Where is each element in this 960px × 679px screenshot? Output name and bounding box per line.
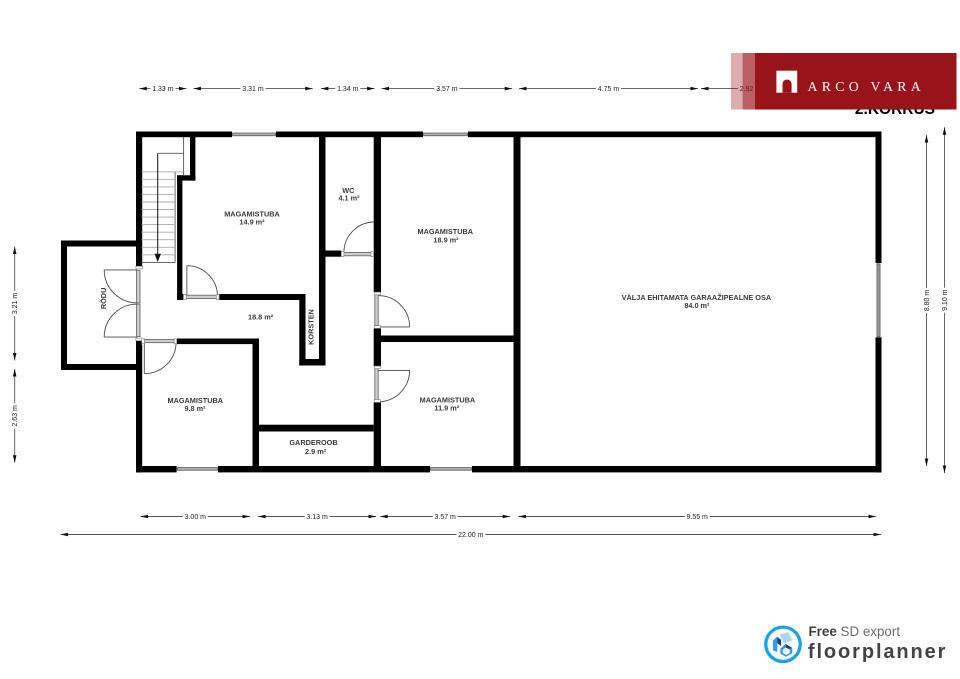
svg-text:9.8 m²: 9.8 m² bbox=[184, 404, 206, 413]
svg-text:18.9 m²: 18.9 m² bbox=[433, 235, 459, 244]
svg-text:18.8 m²: 18.8 m² bbox=[248, 313, 274, 322]
svg-text:floorplanner: floorplanner bbox=[808, 641, 947, 663]
svg-text:3.00 m: 3.00 m bbox=[185, 514, 207, 521]
svg-text:GARDEROOB: GARDEROOB bbox=[289, 438, 337, 447]
svg-text:3.31 m: 3.31 m bbox=[242, 86, 264, 93]
svg-text:22.00 m: 22.00 m bbox=[458, 532, 483, 539]
svg-text:1.34 m: 1.34 m bbox=[337, 86, 359, 93]
svg-text:4.75 m: 4.75 m bbox=[598, 86, 620, 93]
svg-text:1.33 m: 1.33 m bbox=[152, 86, 174, 93]
svg-text:84.0 m²: 84.0 m² bbox=[684, 301, 710, 310]
svg-text:4.1 m²: 4.1 m² bbox=[338, 193, 360, 202]
svg-text:3.21 m: 3.21 m bbox=[12, 293, 19, 315]
svg-text:3.57 m: 3.57 m bbox=[434, 514, 456, 521]
svg-text:2.63 m: 2.63 m bbox=[12, 405, 19, 427]
svg-text:ARCO VARA: ARCO VARA bbox=[808, 79, 926, 94]
svg-text:9.10 m: 9.10 m bbox=[942, 289, 949, 311]
svg-text:11.9 m²: 11.9 m² bbox=[434, 403, 459, 412]
svg-text:9.55 m: 9.55 m bbox=[686, 514, 708, 521]
svg-text:8.80 m: 8.80 m bbox=[924, 290, 931, 312]
svg-text:3.13 m: 3.13 m bbox=[306, 514, 328, 521]
svg-text:3.57 m: 3.57 m bbox=[436, 86, 458, 93]
svg-text:14.9 m²: 14.9 m² bbox=[239, 218, 265, 227]
svg-text:KORSTEN: KORSTEN bbox=[307, 309, 316, 345]
svg-text:RÕDU: RÕDU bbox=[99, 288, 108, 310]
svg-text:Free SD export: Free SD export bbox=[809, 624, 901, 639]
svg-text:2.9 m²: 2.9 m² bbox=[305, 447, 327, 456]
